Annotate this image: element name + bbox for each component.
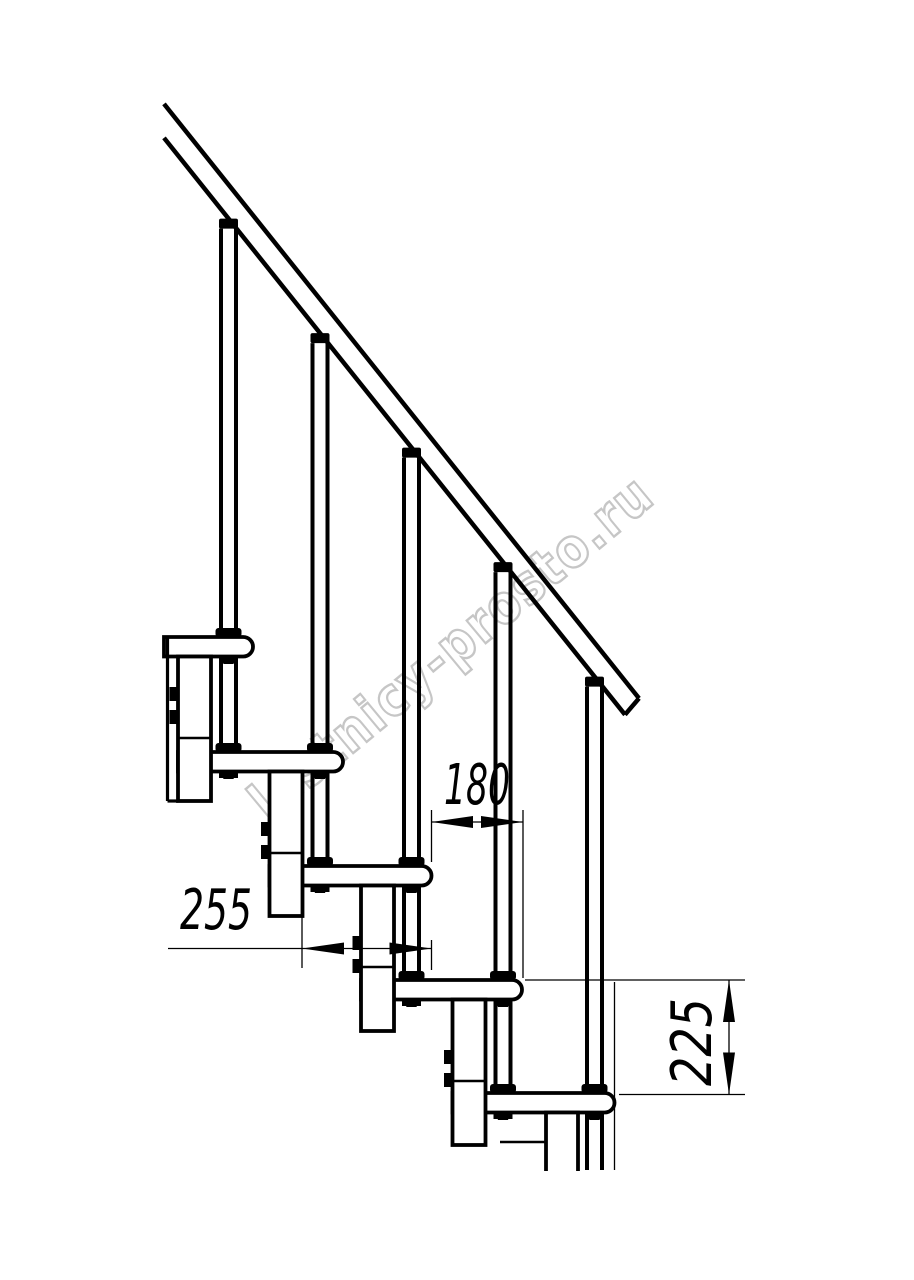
- rod-flange: [399, 971, 425, 980]
- rod-flange: [307, 743, 333, 752]
- bolt-tab: [170, 710, 179, 724]
- column-module: [453, 1000, 486, 1146]
- bolt-tab: [170, 687, 179, 701]
- baluster-rod: [313, 343, 328, 892]
- staircase-technical-drawing: lestnicy-prosto.ru: [0, 0, 914, 1280]
- column-module: [361, 886, 394, 1032]
- bolt-tab: [444, 1050, 453, 1064]
- column-module: [178, 657, 211, 802]
- bolt-tab: [261, 822, 270, 836]
- rod-flange: [216, 628, 242, 637]
- rod-flange: [490, 971, 516, 980]
- bolt-tab: [261, 845, 270, 859]
- dimension-label-225: 225: [660, 998, 725, 1086]
- arrowhead: [302, 943, 344, 955]
- column-module: [546, 1113, 578, 1172]
- dimension-label-180: 180: [444, 753, 510, 818]
- bolt-tab: [444, 1073, 453, 1087]
- baluster-rod: [221, 229, 236, 778]
- rod-flange: [582, 1084, 608, 1093]
- baluster-rod: [496, 572, 511, 1119]
- handrail-end-cap: [625, 698, 639, 714]
- tread: [164, 637, 253, 657]
- rod-flange: [216, 743, 242, 752]
- rod-flange: [399, 857, 425, 866]
- bolt-tab: [353, 959, 362, 973]
- rod-flange: [307, 857, 333, 866]
- dimension-label-255: 255: [180, 878, 252, 943]
- arrowhead: [390, 943, 432, 955]
- baluster-rod: [404, 458, 419, 1006]
- rod-flange: [490, 1084, 516, 1093]
- drawing-page: lestnicy-prosto.ru: [0, 0, 914, 1280]
- column-module: [270, 772, 303, 917]
